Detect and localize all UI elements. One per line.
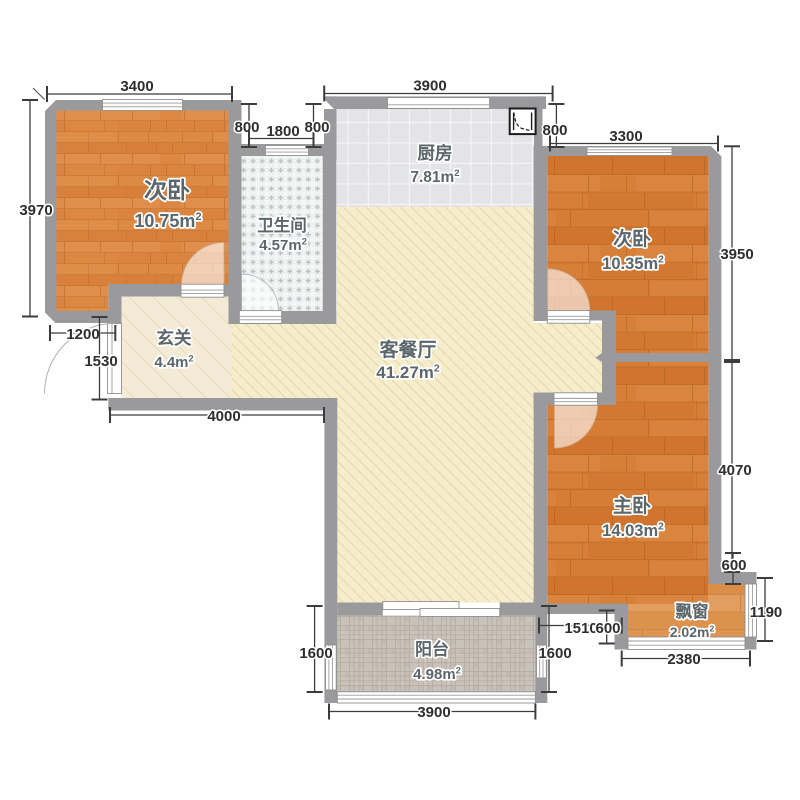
svg-text:3900: 3900 bbox=[413, 78, 446, 95]
svg-text:3950: 3950 bbox=[720, 246, 753, 263]
svg-text:600: 600 bbox=[595, 620, 620, 637]
svg-text:主卧: 主卧 bbox=[613, 495, 651, 517]
svg-text:1530: 1530 bbox=[84, 353, 117, 370]
svg-text:800: 800 bbox=[542, 122, 567, 139]
svg-text:阳台: 阳台 bbox=[415, 639, 449, 659]
svg-text:客餐厅: 客餐厅 bbox=[379, 338, 436, 361]
svg-text:次卧: 次卧 bbox=[613, 227, 651, 250]
svg-text:飘窗: 飘窗 bbox=[676, 601, 709, 621]
svg-text:10.75m2: 10.75m2 bbox=[134, 211, 201, 231]
svg-text:1510: 1510 bbox=[564, 620, 597, 637]
svg-text:3970: 3970 bbox=[19, 202, 52, 219]
svg-text:41.27m2: 41.27m2 bbox=[376, 363, 440, 382]
svg-text:1600: 1600 bbox=[538, 645, 571, 662]
svg-text:3300: 3300 bbox=[609, 128, 642, 145]
svg-text:600: 600 bbox=[721, 557, 746, 574]
svg-text:800: 800 bbox=[234, 119, 259, 136]
svg-text:14.03m2: 14.03m2 bbox=[602, 522, 664, 540]
svg-text:1800: 1800 bbox=[266, 123, 299, 140]
svg-text:2380: 2380 bbox=[667, 651, 700, 668]
svg-text:4070: 4070 bbox=[718, 462, 751, 479]
svg-text:4.4m2: 4.4m2 bbox=[154, 353, 193, 371]
svg-text:10.35m2: 10.35m2 bbox=[602, 255, 664, 273]
svg-text:3900: 3900 bbox=[417, 704, 450, 721]
svg-text:4.57m2: 4.57m2 bbox=[259, 236, 307, 254]
svg-text:厨房: 厨房 bbox=[418, 143, 453, 163]
svg-text:卫生间: 卫生间 bbox=[257, 215, 307, 235]
svg-text:玄关: 玄关 bbox=[157, 328, 192, 348]
svg-text:次卧: 次卧 bbox=[144, 177, 190, 203]
svg-text:1200: 1200 bbox=[66, 326, 99, 343]
svg-text:7.81m2: 7.81m2 bbox=[410, 168, 459, 186]
svg-text:4000: 4000 bbox=[207, 408, 240, 425]
svg-text:4.98m2: 4.98m2 bbox=[413, 665, 461, 683]
svg-text:1600: 1600 bbox=[299, 645, 332, 662]
svg-text:1190: 1190 bbox=[750, 604, 783, 621]
svg-text:800: 800 bbox=[304, 119, 329, 136]
svg-text:3400: 3400 bbox=[120, 78, 153, 95]
svg-text:2.02m2: 2.02m2 bbox=[670, 624, 715, 640]
